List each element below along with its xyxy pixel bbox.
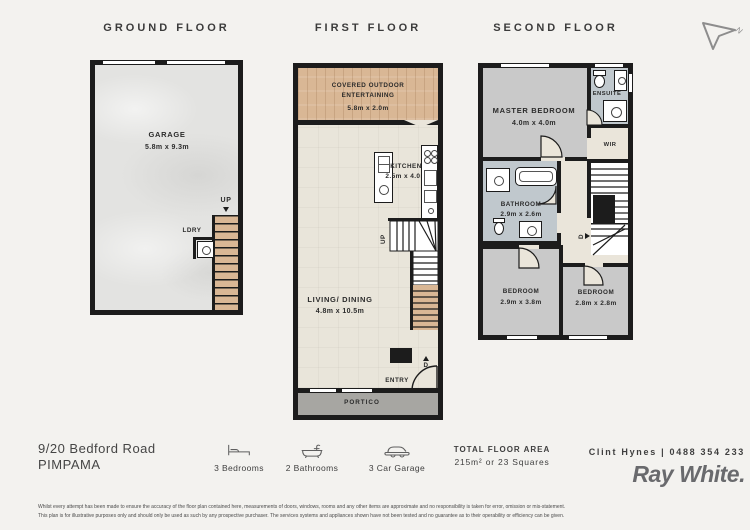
ground-floor-title: GROUND FLOOR [90,22,243,34]
window [103,60,155,65]
door-arrow-icon [585,233,590,239]
portico-label: PORTICO [344,399,380,406]
bedroom2-label: BEDROOM [503,288,539,295]
wall [559,245,563,335]
property-address: 9/20 Bedford Road PIMPAMA [38,441,156,474]
master-dims: 4.0m x 4.0m [512,120,556,127]
wir-label: WIR [604,142,617,148]
ensuite-label: ENSUITE [593,91,622,97]
wall [565,157,587,161]
garage-label: GARAGE [148,130,185,139]
ground-stairs [212,215,238,310]
wall [193,237,215,240]
bedrooms-count: 3 Bedrooms [199,463,279,473]
window [628,74,633,92]
bedroom3-label: BEDROOM [578,289,614,296]
vanity [603,100,627,122]
bedroom3-dims: 2.8m x 2.8m [575,300,616,307]
second-floor-title: SECOND FLOOR [478,22,633,34]
first-floor-stairs [388,218,438,330]
first-floor-title: FIRST FLOOR [293,22,443,34]
bathrooms-count: 2 Bathrooms [272,463,352,473]
disclaimer-line2: This plan is for illustrative purposes o… [38,512,720,521]
total-area-value: 215m² or 23 Squares [447,457,557,467]
bedroom2-dims: 2.9m x 3.8m [500,299,541,306]
bath-icon [298,443,326,458]
entry-label: ENTRY [385,377,409,384]
bedroom3-door-arc [584,266,603,285]
master-door-arc [541,136,562,157]
laundry-label: LDRY [183,227,202,234]
living-label: LIVING/ DINING [307,295,372,304]
north-arrow-icon [696,16,742,54]
bathroom-label: BATHROOM [501,201,542,208]
kitchen-label: KITCHEN [390,163,422,170]
outdoor-label-2: ENTERTAINING [342,92,395,99]
agent-contact: Clint Hynes | 0488 354 233 [589,447,745,457]
total-area-title: TOTAL FLOOR AREA [447,445,557,454]
window [595,63,623,68]
floorplan-page: GROUND FLOOR FIRST FLOOR SECOND FLOOR N … [0,0,750,530]
first-floor-plan: COVERED OUTDOOR ENTERTAINING 5.8m x 2.0m… [293,63,443,420]
disclaimer-line1: Whilst every attempt has been made to en… [38,503,720,512]
feature-bathrooms: 2 Bathrooms [272,443,352,473]
wall [587,68,591,110]
stairs-up-label: UP [220,197,231,204]
second-floor-plan: ENSUITE WIR MASTER BEDROOM 4.0m x 4.0m B… [478,63,633,340]
bathroom-dims: 2.9m x 2.6m [500,211,541,218]
wall [603,263,628,267]
garage-count: 3 Car Garage [357,463,437,473]
washing-machine [197,241,214,258]
feature-bedrooms: 3 Bedrooms [199,443,279,473]
vanity [519,221,542,238]
window [569,335,607,340]
stairs-up-label: UP [380,226,387,252]
address-line2: PIMPAMA [38,457,156,473]
wall [587,124,591,138]
disclaimer: Whilst every attempt has been made to en… [38,503,720,520]
master-label: MASTER BEDROOM [493,106,576,115]
wall [483,157,541,161]
total-floor-area: TOTAL FLOOR AREA 215m² or 23 Squares [447,445,557,467]
window [507,335,537,340]
garage-dims: 5.8m x 9.3m [145,144,189,151]
outdoor-label-1: COVERED OUTDOOR [332,82,405,89]
ensuite-door-arc [587,110,602,125]
window [501,63,549,68]
wall [539,245,559,249]
wall [557,161,561,213]
toilet [594,75,605,88]
bedroom2-door-arc [519,248,539,268]
door-arrow-icon [423,356,429,361]
feature-garage: 3 Car Garage [357,444,437,473]
address-line1: 9/20 Bedford Road [38,441,156,457]
shower [486,168,510,192]
wall [563,263,585,267]
second-floor-stairs [591,163,628,255]
outdoor-dims: 5.8m x 2.0m [347,105,388,112]
window [167,60,225,65]
wall [390,348,412,363]
car-icon [383,444,411,458]
ground-floor-plan: GARAGE 5.8m x 9.3m UP LDRY [90,60,243,315]
toilet [494,222,504,235]
kitchen-bench [421,145,438,222]
stair-door-label: D [578,228,585,244]
bed-icon [225,443,253,458]
up-arrow-icon [223,207,229,212]
wall [483,245,519,249]
bathtub [515,167,557,186]
shower [614,70,627,91]
brand-logo: Ray White. [632,461,745,488]
wall [193,237,196,259]
living-dims: 4.8m x 10.5m [316,308,364,315]
